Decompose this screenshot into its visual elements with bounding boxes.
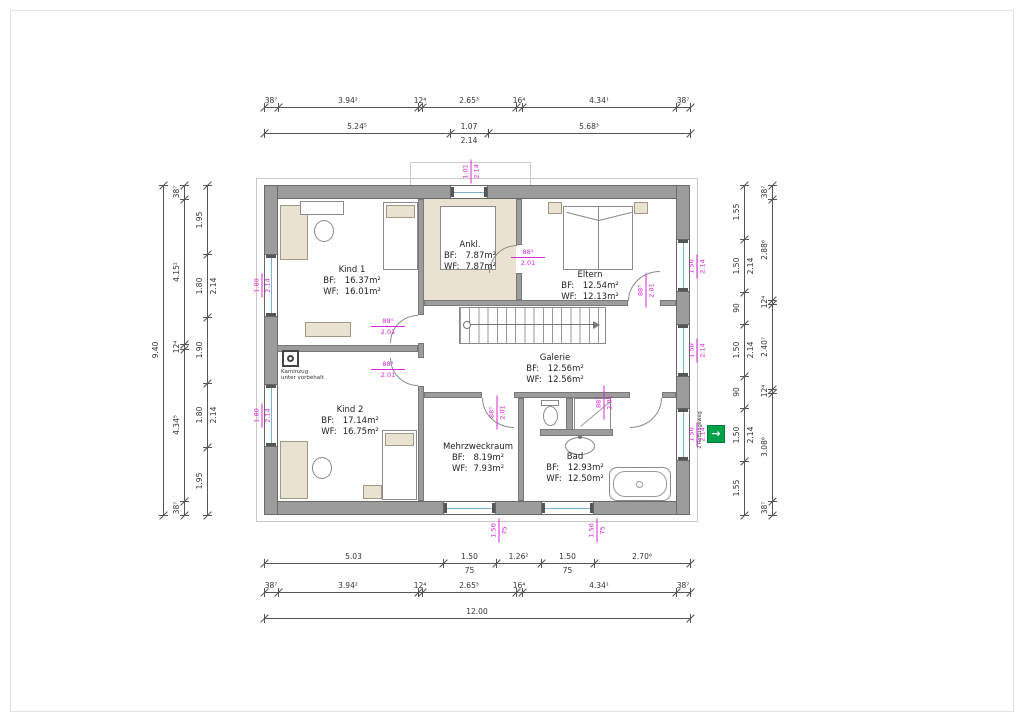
window-ankl-top xyxy=(450,185,488,199)
tag-height-value: 2.14 xyxy=(472,160,482,184)
bf-value: 12.93m² xyxy=(568,463,604,474)
dim-value-left_inner: 1.95 xyxy=(195,200,205,240)
dormer-line-left xyxy=(410,162,411,185)
floor-plan-sheet: Kaminzug unter vorbehalt → 2 Rettungsweg… xyxy=(0,0,1024,722)
window-frame-cap xyxy=(678,325,688,328)
kaminzug-label-line2: unter vorbehalt xyxy=(281,375,324,381)
dim-end-tick xyxy=(203,383,212,384)
bf-value: 12.54m² xyxy=(583,281,619,292)
dim-sub-right_inner: 2.14 xyxy=(746,330,756,370)
eltern-nightstand-right xyxy=(634,202,648,214)
kind2-wardrobe xyxy=(280,441,308,499)
dim-value-left_mid: 12⁴ xyxy=(172,327,182,367)
dormer-line-right xyxy=(530,162,531,185)
tag-width-value: 88⁵ xyxy=(487,396,498,430)
tag-width-value: 1.50 xyxy=(687,423,698,447)
bathtub-drain xyxy=(636,481,643,488)
window-tag-bad-bottom: 1.5075 xyxy=(587,519,608,543)
dim-value-left_mid: 38⁷ xyxy=(172,172,182,212)
window-glazing xyxy=(453,192,485,193)
dim-value-left_inner: 1.90 xyxy=(195,330,205,370)
window-tag-eltern: 1.502.14 xyxy=(687,255,708,279)
window-glazing xyxy=(544,508,591,509)
dim-sub-left_inner: 2.14 xyxy=(209,266,219,306)
room-label-kind2: Kind 2 BF:17.14m² WF:16.75m² xyxy=(308,405,392,438)
dim-value-top_row2: 1.07 xyxy=(439,122,499,131)
window-frame-cap xyxy=(266,443,276,446)
bf-value: 8.19m² xyxy=(473,453,504,464)
bf-value: 16.37m² xyxy=(345,276,381,287)
kind2-sideboard xyxy=(363,485,382,499)
window-frame-cap xyxy=(678,373,688,376)
dim-end-tick xyxy=(264,129,265,138)
shower-wall-vertical xyxy=(566,398,573,431)
dim-value-bottom_row2: 4.34¹ xyxy=(569,581,629,590)
room-name: Kind 1 xyxy=(310,265,394,276)
tag-height-value: 2.14 xyxy=(263,274,273,298)
dim-end-tick xyxy=(159,185,168,186)
dim-sub-bottom_row1: 75 xyxy=(440,566,500,575)
dim-end-tick xyxy=(203,254,212,255)
tag-height-value: 2.14 xyxy=(698,339,708,363)
window-mehrzweck-bottom xyxy=(443,501,496,515)
tag-height-value: 75 xyxy=(500,519,510,543)
dim-value-bottom_row1: 2.70⁸ xyxy=(612,552,672,561)
dim-value-left_mid: 38⁷ xyxy=(172,488,182,528)
interior-wall-galerie-bottom-c xyxy=(662,392,676,398)
shower-wall-horizontal xyxy=(540,429,613,436)
wf-label: WF: xyxy=(526,375,542,386)
dim-sub-right_inner: 2.14 xyxy=(746,415,756,455)
tag-height-value: 2.01 xyxy=(371,327,405,337)
wf-value: 7.87m² xyxy=(465,262,496,273)
dim-value-bottom_row2: 16⁴ xyxy=(489,581,549,590)
dim-line-bottom_total xyxy=(264,618,690,619)
dim-value-bottom_row2: 3.94² xyxy=(318,581,378,590)
wf-label: WF: xyxy=(321,427,337,438)
dim-end-tick xyxy=(690,614,691,623)
dim-value-right_inner: 1.50 xyxy=(732,415,742,455)
dim-line-top_row2 xyxy=(264,133,690,134)
interior-wall-ankl-eltern-b xyxy=(516,273,522,300)
dim-end-tick xyxy=(740,185,749,186)
interior-wall-center-mid xyxy=(418,343,424,358)
dim-value-right_outer: 38⁷ xyxy=(760,488,770,528)
wf-label: WF: xyxy=(546,474,562,485)
exterior-wall-left xyxy=(264,185,278,515)
dim-value-right_inner: 90 xyxy=(732,372,742,412)
dim-value-top_row1: 38⁷ xyxy=(653,96,713,105)
window-frame-cap xyxy=(678,240,688,243)
window-frame-cap xyxy=(444,503,447,513)
window-frame-cap xyxy=(678,288,688,291)
chimney-flue-icon xyxy=(287,355,294,362)
dim-value-right_inner: 90 xyxy=(732,288,742,328)
eltern-nightstand-left xyxy=(548,202,562,214)
tag-height-value: 2.01 xyxy=(647,274,657,308)
dim-line-bottom_row1 xyxy=(264,563,690,564)
dim-value-top_row2: 5.24⁵ xyxy=(327,122,387,131)
window-tag-kind2: 1.802.14 xyxy=(252,404,273,428)
dim-value-left_inner: 1.80 xyxy=(195,266,205,306)
room-name: Bad xyxy=(533,452,617,463)
dim-value-top_row2: 5.68³ xyxy=(559,122,619,131)
dim-end-tick xyxy=(203,515,212,516)
tag-width-value: 1.50 xyxy=(587,519,598,543)
window-bad-bottom xyxy=(541,501,594,515)
bf-label: BF: xyxy=(561,281,577,292)
window-frame-cap xyxy=(590,503,593,513)
dim-value-left_mid: 4.15² xyxy=(172,252,182,292)
tag-width-value: 88⁵ xyxy=(371,316,405,327)
dim-value-left_inner: 1.80 xyxy=(195,395,205,435)
interior-wall-galerie-bottom-a xyxy=(424,392,482,398)
escape-route-icon: → xyxy=(707,425,725,443)
window-frame-cap xyxy=(266,313,276,316)
wf-label: WF: xyxy=(444,262,460,273)
room-label-eltern: Eltern BF:12.54m² WF:12.13m² xyxy=(548,270,632,303)
tag-width-value: 88⁵ xyxy=(594,386,605,420)
door-tag-ankl: 88⁵2.01 xyxy=(511,247,545,268)
tag-height-value: 2.01 xyxy=(605,386,615,420)
dim-value-bottom_row2: 38⁷ xyxy=(241,581,301,590)
room-label-galerie: Galerie BF:12.56m² WF:12.56m² xyxy=(513,353,597,386)
tag-height-value: 2.14 xyxy=(698,423,708,447)
tag-height-value: 2.01 xyxy=(371,370,405,380)
dim-end-tick xyxy=(203,185,212,186)
window-frame-cap xyxy=(266,255,276,258)
window-tag-ankl: 1.012.14 xyxy=(461,160,482,184)
dim-value-right_inner: 1.50 xyxy=(732,330,742,370)
wf-value: 12.56m² xyxy=(548,375,584,386)
eltern-bed-center-line xyxy=(598,206,599,270)
dim-end-tick xyxy=(740,239,749,240)
dim-line-left_inner xyxy=(207,185,208,515)
tag-width-value: 88⁵ xyxy=(636,274,647,308)
door-tag-kind1: 88⁵2.01 xyxy=(371,316,405,337)
dim-value-bottom_row1: 1.50 xyxy=(538,552,598,561)
window-frame-cap xyxy=(484,187,487,197)
window-tag-mehrzweck-bottom: 1.5075 xyxy=(489,519,510,543)
room-label-bad: Bad BF:12.93m² WF:12.50m² xyxy=(533,452,617,485)
dim-line-bottom_row2 xyxy=(264,592,690,593)
bf-value: 17.14m² xyxy=(343,416,379,427)
door-tag-kind2: 88⁵2.01 xyxy=(371,359,405,380)
stair-walk-line xyxy=(466,324,594,325)
window-glazing xyxy=(683,242,684,289)
window-frame-cap xyxy=(678,409,688,412)
room-label-mehrzweckraum: Mehrzweckraum BF:8.19m² WF:7.93m² xyxy=(428,442,528,475)
dim-value-right_outer: 12⁴ xyxy=(760,371,770,411)
window-glazing xyxy=(683,327,684,374)
bf-value: 7.87m² xyxy=(465,251,496,262)
bf-label: BF: xyxy=(444,251,460,262)
dim-end-tick xyxy=(159,515,168,516)
staircase xyxy=(459,307,606,344)
bf-label: BF: xyxy=(452,453,468,464)
dim-end-tick xyxy=(264,559,265,568)
room-name: Mehrzweckraum xyxy=(428,442,528,453)
window-tag-kind1: 1.802.14 xyxy=(252,274,273,298)
dim-value-right_outer: 3.08⁶ xyxy=(760,427,770,467)
room-name: Galerie xyxy=(513,353,597,364)
dim-value-top_row1: 4.34¹ xyxy=(569,96,629,105)
tag-width-value: 88⁵ xyxy=(511,247,545,258)
kind1-desk xyxy=(300,201,344,215)
wf-value: 16.01m² xyxy=(345,287,381,298)
window-tag-galerie: 1.502.14 xyxy=(687,339,708,363)
dim-line-right_outer xyxy=(772,185,773,515)
kind1-sideboard xyxy=(305,322,351,337)
dim-value-right_outer: 12⁴ xyxy=(760,282,770,322)
dim-value-left_mid: 4.34⁵ xyxy=(172,405,182,445)
window-frame-cap xyxy=(678,457,688,460)
bf-value: 12.56m² xyxy=(548,364,584,375)
dim-line-left_outer xyxy=(163,185,164,515)
room-name: Eltern xyxy=(548,270,632,281)
bf-label: BF: xyxy=(321,416,337,427)
dim-value-top_row1: 16⁴ xyxy=(489,96,549,105)
tag-width-value: 1.80 xyxy=(252,404,263,428)
kind2-chair xyxy=(312,457,332,479)
dim-end-tick xyxy=(264,614,265,623)
tag-width-value: 1.50 xyxy=(687,339,698,363)
room-name: Kind 2 xyxy=(308,405,392,416)
wf-value: 12.13m² xyxy=(583,292,619,303)
dim-value-right_outer: 2.88⁶ xyxy=(760,230,770,270)
window-frame-cap xyxy=(451,187,454,197)
window-glazing xyxy=(683,411,684,458)
dim-value-bottom_row1: 5.03 xyxy=(324,552,384,561)
dim-end-tick xyxy=(690,559,691,568)
dim-end-tick xyxy=(203,317,212,318)
dim-sub-left_inner: 2.14 xyxy=(209,395,219,435)
dim-line-right_inner xyxy=(744,185,745,515)
wf-label: WF: xyxy=(452,464,468,475)
kind1-chair xyxy=(314,220,334,242)
tag-height-value: 75 xyxy=(598,519,608,543)
toilet-bowl xyxy=(543,406,558,426)
bf-label: BF: xyxy=(546,463,562,474)
dim-line-top_row1 xyxy=(264,107,690,108)
dim-value-top_row1: 3.94² xyxy=(318,96,378,105)
dim-end-tick xyxy=(740,461,749,462)
door-tag-bad: 88⁵2.01 xyxy=(594,386,615,420)
dim-end-tick xyxy=(740,515,749,516)
wf-label: WF: xyxy=(323,287,339,298)
sink-tap xyxy=(578,435,582,439)
dim-value-right_outer: 38⁷ xyxy=(760,172,770,212)
tag-width-value: 1.50 xyxy=(489,519,500,543)
tag-height-value: 2.01 xyxy=(498,396,508,430)
tag-width-value: 1.01 xyxy=(461,160,472,184)
dim-sub-bottom_row1: 75 xyxy=(538,566,598,575)
dim-value-top_row1: 38⁷ xyxy=(241,96,301,105)
tag-width-value: 1.50 xyxy=(687,255,698,279)
tag-width-value: 1.80 xyxy=(252,274,263,298)
stair-arrow-icon xyxy=(593,321,600,329)
tag-height-value: 2.01 xyxy=(511,258,545,268)
window-tag-bad-right: 1.502.14 xyxy=(687,423,708,447)
dim-value-bottom_row2: 38⁷ xyxy=(653,581,713,590)
tag-width-value: 88⁵ xyxy=(371,359,405,370)
dim-value-right_inner: 1.50 xyxy=(732,246,742,286)
dim-end-tick xyxy=(690,129,691,138)
interior-wall-ankl-eltern-a xyxy=(516,199,522,245)
bf-label: BF: xyxy=(323,276,339,287)
wf-label: WF: xyxy=(561,292,577,303)
dim-value-bottom_total: 12.00 xyxy=(447,607,507,616)
room-name: Ankl. xyxy=(428,240,512,251)
interior-wall-center-lower xyxy=(418,386,424,501)
wf-value: 7.93m² xyxy=(473,464,504,475)
dim-end-tick xyxy=(203,447,212,448)
window-glazing xyxy=(446,508,493,509)
room-label-kind1: Kind 1 BF:16.37m² WF:16.01m² xyxy=(310,265,394,298)
dim-value-right_inner: 1.55 xyxy=(732,468,742,508)
dim-sub-right_inner: 2.14 xyxy=(746,246,756,286)
tag-height-value: 2.14 xyxy=(698,255,708,279)
stair-walk-start xyxy=(463,321,471,329)
kind1-bed-pillow xyxy=(386,205,415,218)
tag-height-value: 2.14 xyxy=(263,404,273,428)
interior-wall-galerie-top-b xyxy=(660,300,676,306)
dim-value-left_outer: 9.40 xyxy=(151,330,161,370)
window-frame-cap xyxy=(542,503,545,513)
bf-label: BF: xyxy=(526,364,542,375)
window-frame-cap xyxy=(492,503,495,513)
window-frame-cap xyxy=(266,385,276,388)
dim-value-left_inner: 1.95 xyxy=(195,461,205,501)
door-tag-eltern: 88⁵2.01 xyxy=(636,274,657,308)
wf-value: 12.50m² xyxy=(568,474,604,485)
room-label-ankl: Ankl. BF:7.87m² WF:7.87m² xyxy=(428,240,512,273)
door-tag-mehrzweckraum: 88⁵2.01 xyxy=(487,396,508,430)
dim-sub-top_row2: 2.14 xyxy=(439,136,499,145)
dim-value-right_inner: 1.55 xyxy=(732,192,742,232)
wf-value: 16.75m² xyxy=(343,427,379,438)
dim-value-right_outer: 2.40⁷ xyxy=(760,327,770,367)
